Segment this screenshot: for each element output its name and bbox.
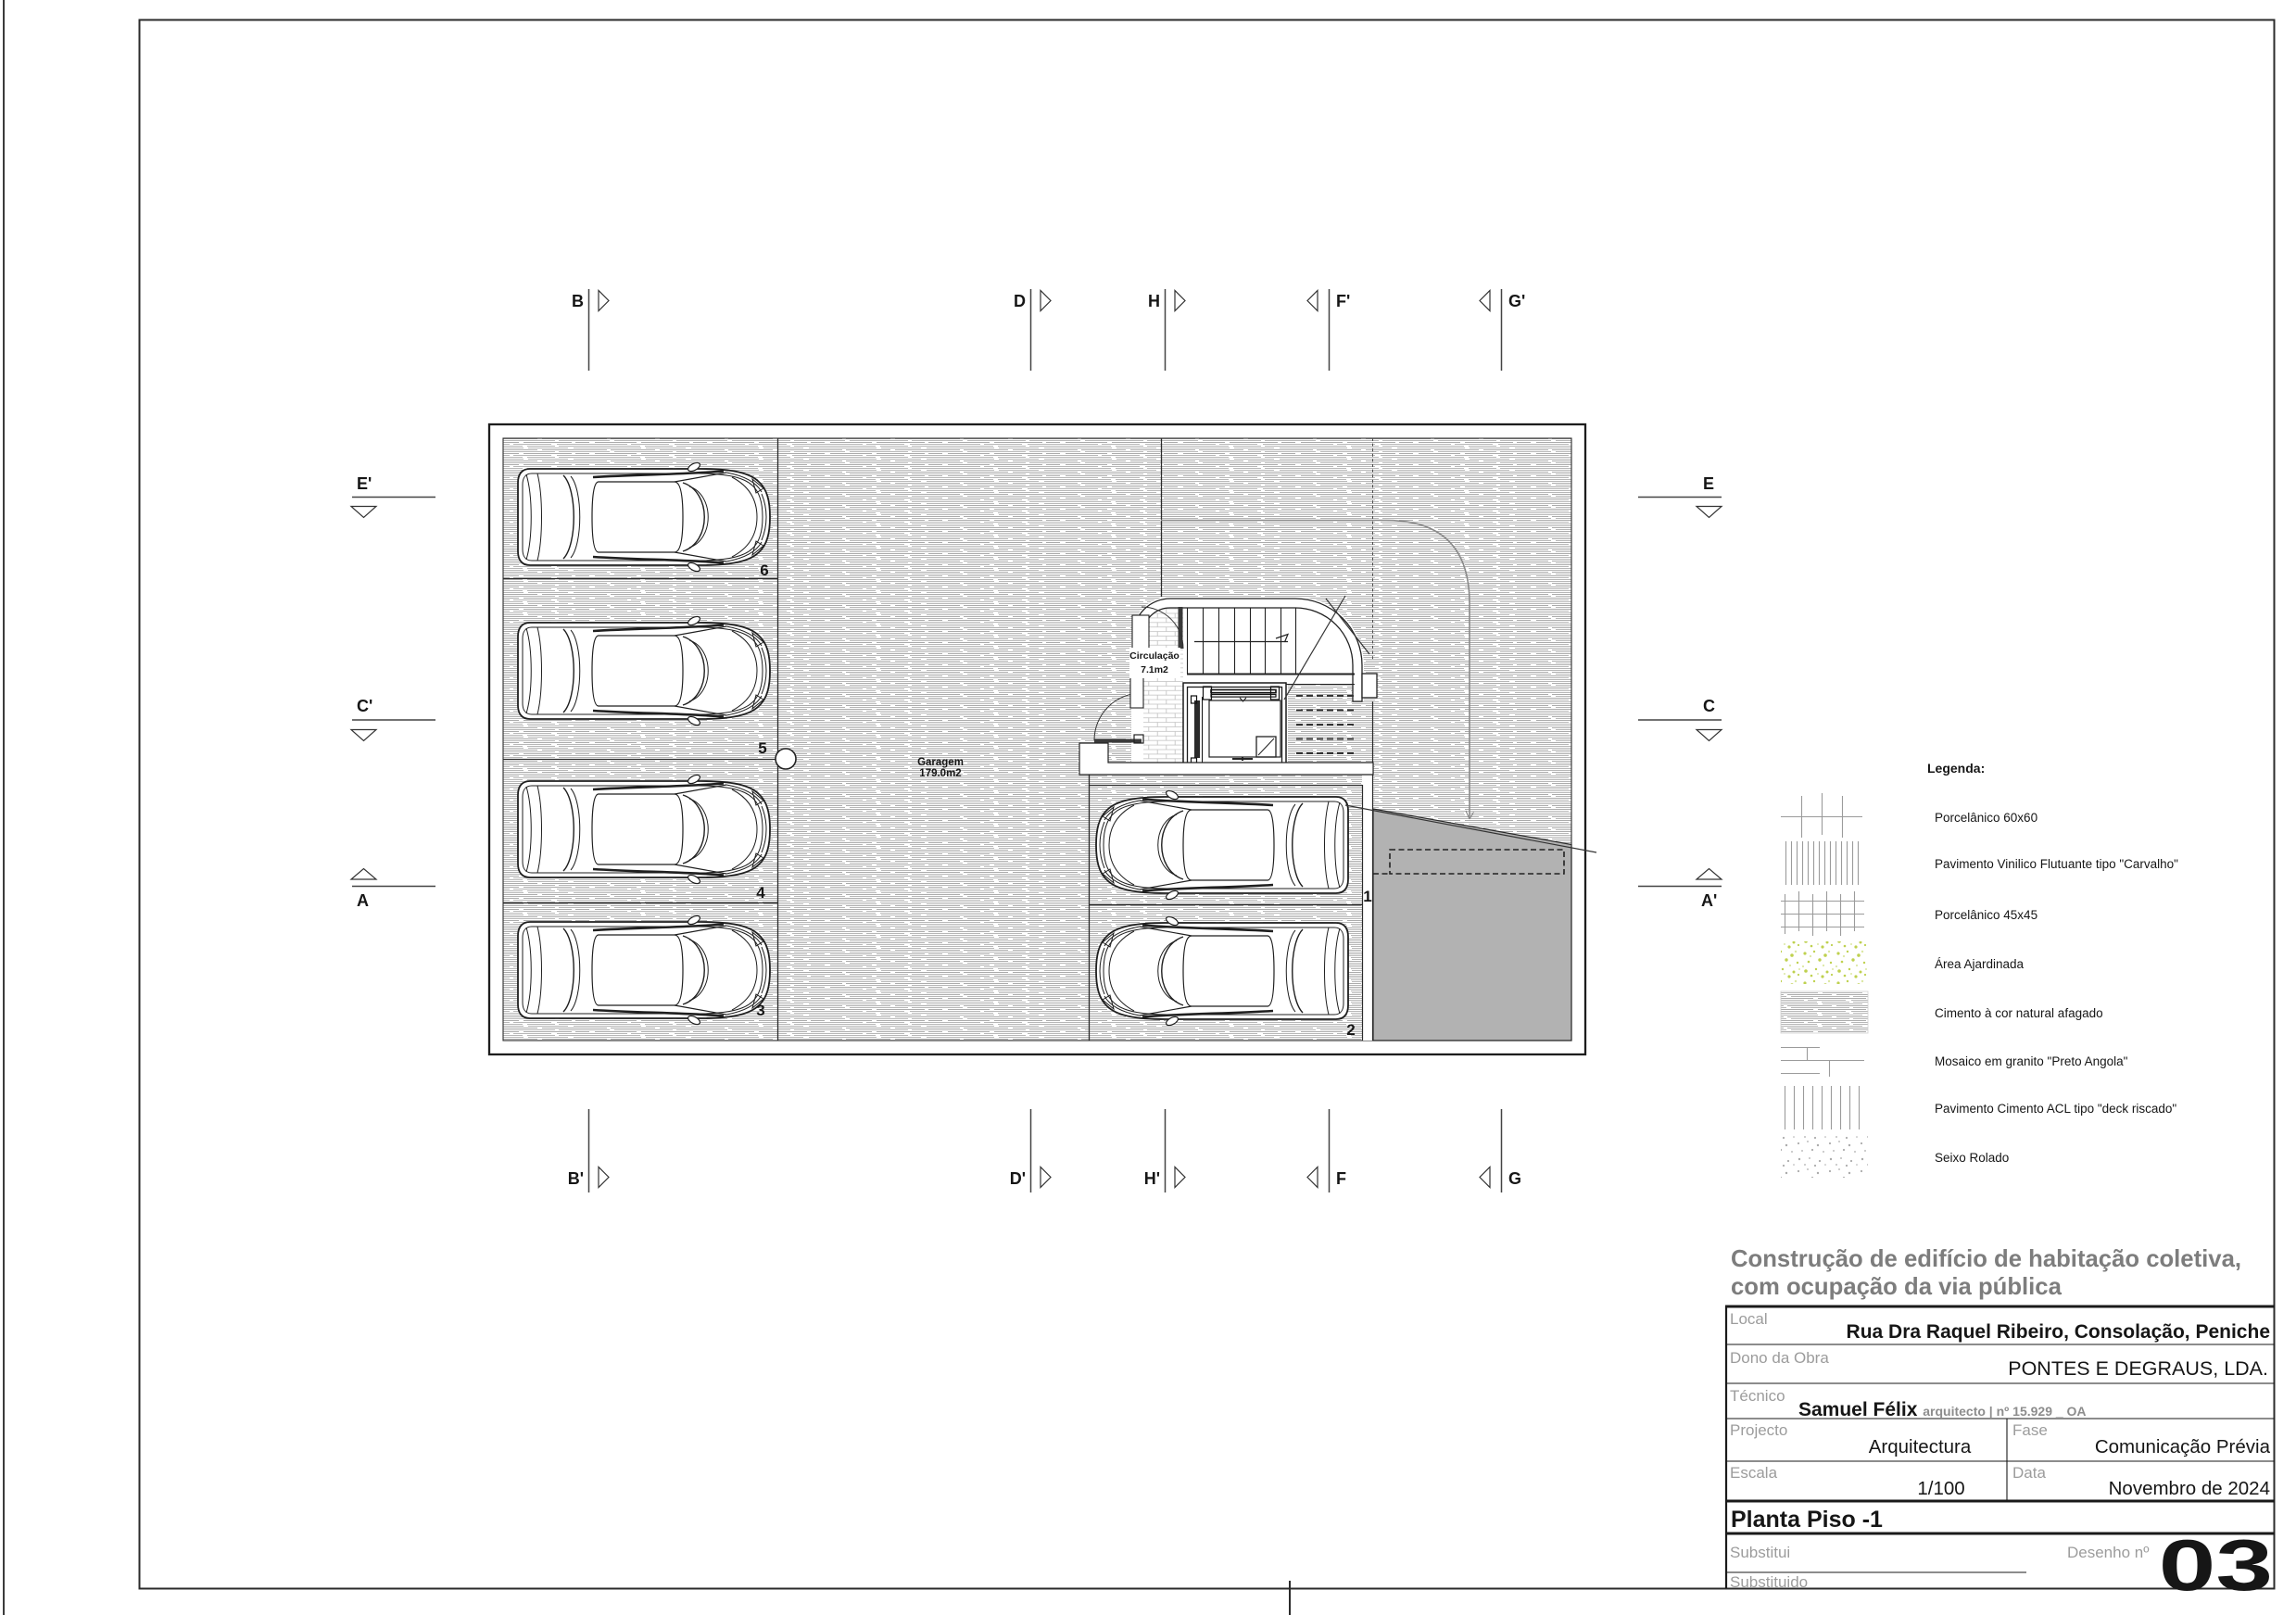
svg-text:G: G xyxy=(1508,1169,1521,1188)
svg-text:F: F xyxy=(1336,1169,1346,1188)
svg-text:Garagem: Garagem xyxy=(917,757,964,768)
svg-text:Seixo Rolado: Seixo Rolado xyxy=(1935,1151,2009,1165)
svg-text:Porcelânico 45x45: Porcelânico 45x45 xyxy=(1935,908,2037,922)
svg-text:Área Ajardinada: Área Ajardinada xyxy=(1935,957,2025,971)
svg-text:A': A' xyxy=(1701,891,1717,910)
svg-text:Desenho nº: Desenho nº xyxy=(2067,1544,2149,1561)
svg-text:A: A xyxy=(357,891,369,910)
svg-text:3: 3 xyxy=(756,1002,764,1019)
svg-text:Planta Piso -1: Planta Piso -1 xyxy=(1731,1507,1883,1533)
svg-text:C': C' xyxy=(357,697,372,715)
svg-text:Pavimento Cimento ACL tipo "de: Pavimento Cimento ACL tipo "deck riscado… xyxy=(1935,1102,2176,1116)
svg-text:com ocupação da via pública: com ocupação da via pública xyxy=(1731,1274,2063,1300)
svg-text:Técnico: Técnico xyxy=(1730,1387,1785,1405)
svg-text:03: 03 xyxy=(2159,1525,2273,1606)
svg-text:C: C xyxy=(1703,697,1715,715)
svg-text:D': D' xyxy=(1010,1169,1026,1188)
svg-text:1/100: 1/100 xyxy=(1917,1478,1964,1499)
svg-text:H: H xyxy=(1148,292,1160,310)
svg-text:Pavimento Vinilico Flutuante t: Pavimento Vinilico Flutuante tipo "Carva… xyxy=(1935,857,2178,871)
svg-text:Data: Data xyxy=(2012,1464,2046,1482)
svg-text:4: 4 xyxy=(756,884,765,902)
svg-text:Mosaico em granito "Preto Ango: Mosaico em granito "Preto Angola" xyxy=(1935,1054,2128,1068)
svg-text:Porcelânico 60x60: Porcelânico 60x60 xyxy=(1935,811,2037,825)
svg-text:Substitui: Substitui xyxy=(1730,1544,1790,1561)
svg-text:F': F' xyxy=(1336,292,1350,310)
svg-text:Arquitectura: Arquitectura xyxy=(1869,1436,1972,1457)
svg-text:B: B xyxy=(572,292,584,310)
svg-text:Cimento à cor natural afagado: Cimento à cor natural afagado xyxy=(1935,1006,2103,1020)
svg-text:Rua Dra Raquel Ribeiro, Consol: Rua Dra Raquel Ribeiro, Consolação, Peni… xyxy=(1847,1321,2270,1343)
svg-text:2: 2 xyxy=(1346,1021,1355,1039)
svg-text:G': G' xyxy=(1508,292,1525,310)
svg-text:Comunicação Prévia: Comunicação Prévia xyxy=(2095,1436,2271,1457)
svg-text:179.0m2: 179.0m2 xyxy=(919,768,961,779)
svg-text:7.1m2: 7.1m2 xyxy=(1141,664,1168,675)
svg-text:6: 6 xyxy=(760,561,768,579)
svg-text:5: 5 xyxy=(758,739,766,757)
svg-text:Circulação: Circulação xyxy=(1129,650,1180,662)
svg-text:E': E' xyxy=(357,474,372,493)
svg-text:H': H' xyxy=(1144,1169,1160,1188)
svg-text:Legenda:: Legenda: xyxy=(1927,761,1985,776)
svg-text:Escala: Escala xyxy=(1730,1464,1778,1482)
svg-text:Dono da Obra: Dono da Obra xyxy=(1730,1349,1829,1367)
svg-text:Substituido: Substituido xyxy=(1730,1573,1808,1591)
svg-text:Fase: Fase xyxy=(2012,1421,2048,1439)
svg-text:Construção de edifício de habi: Construção de edifício de habitação cole… xyxy=(1731,1246,2241,1272)
svg-text:Projecto: Projecto xyxy=(1730,1421,1787,1439)
svg-text:1: 1 xyxy=(1363,888,1371,905)
svg-text:E: E xyxy=(1703,474,1714,493)
svg-text:Novembro de 2024: Novembro de 2024 xyxy=(2109,1478,2270,1499)
svg-text:D: D xyxy=(1014,292,1026,310)
svg-text:PONTES E DEGRAUS, LDA.: PONTES E DEGRAUS, LDA. xyxy=(2008,1357,2268,1380)
svg-text:B': B' xyxy=(568,1169,584,1188)
svg-text:Local: Local xyxy=(1730,1310,1768,1328)
